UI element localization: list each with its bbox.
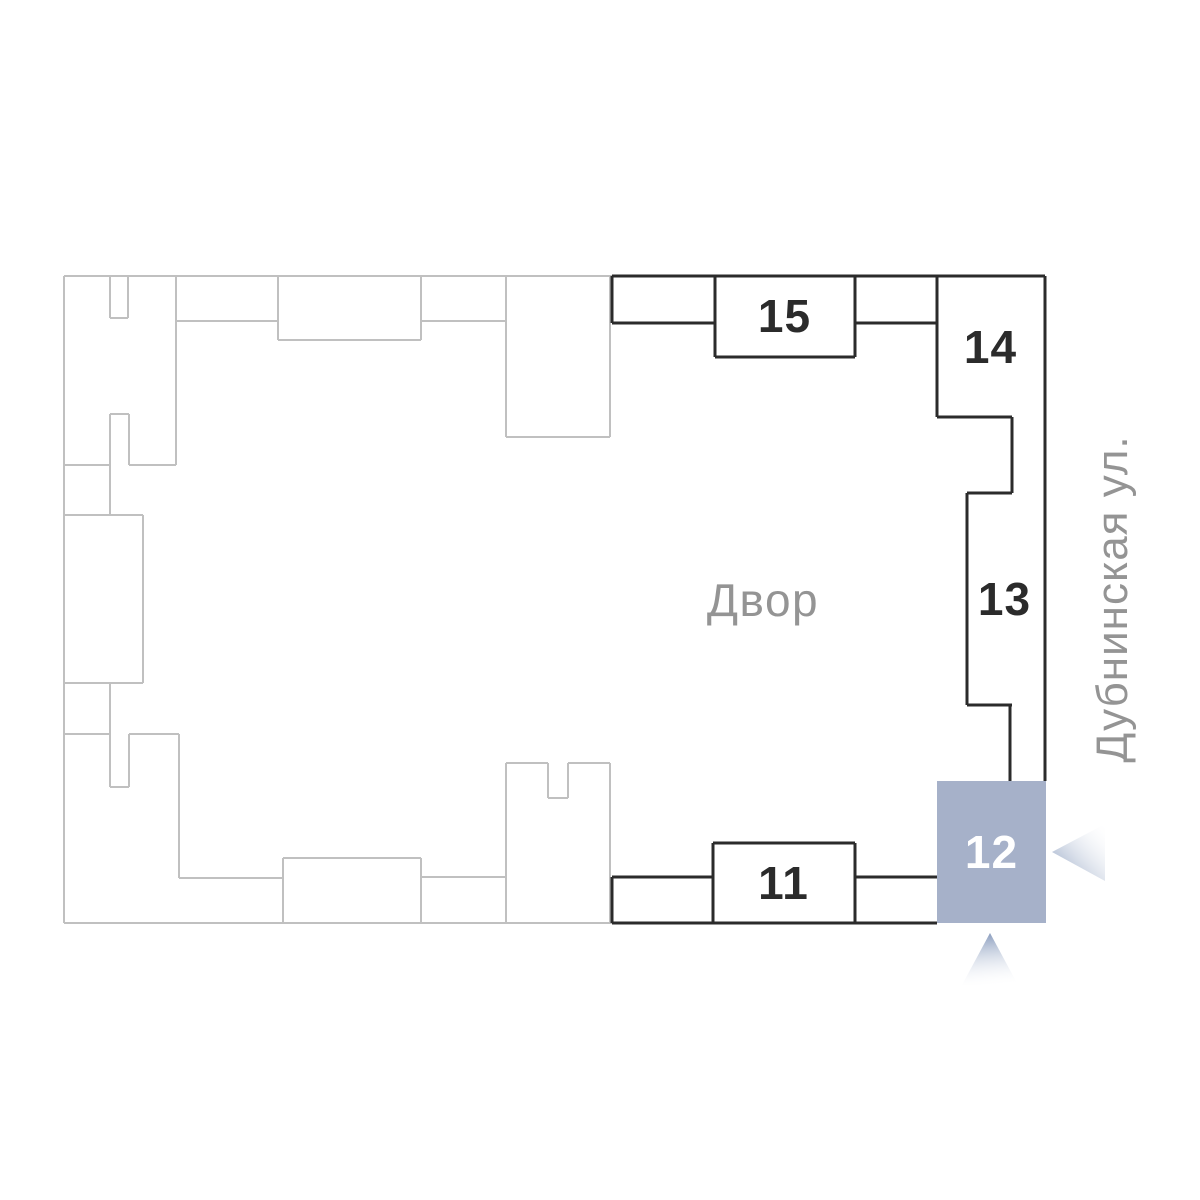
section-13-number: 13 [978,572,1031,626]
section-14-number: 14 [964,320,1017,374]
section-14[interactable]: 14 [936,276,1045,417]
muted-building-outlines [64,276,612,923]
site-plan-canvas: 15 14 13 12 11 Двор Дубнинская ул. [0,0,1200,1200]
section-11-number: 11 [758,856,809,910]
arrow-up-icon [962,933,1018,985]
section-12-selected[interactable]: 12 [937,781,1046,923]
section-13[interactable]: 13 [966,493,1043,705]
section-15[interactable]: 15 [714,275,855,357]
section-11[interactable]: 11 [712,843,855,923]
section-12-number: 12 [965,825,1018,879]
arrow-left-icon [1052,824,1105,881]
street-label: Дубнинская ул. [1088,435,1138,762]
courtyard-label: Двор [707,573,819,627]
section-15-number: 15 [758,289,811,343]
